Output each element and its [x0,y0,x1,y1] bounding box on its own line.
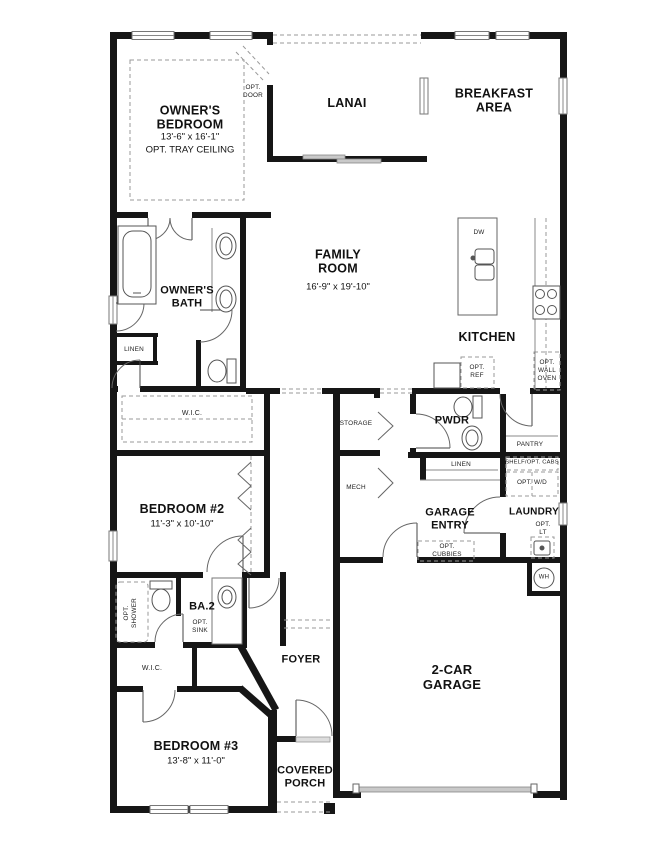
shower-icon [118,226,156,304]
opt-door-swing [243,46,269,74]
room-note-owners-bedroom: OPT. TRAY CEILING [120,146,260,157]
room-label-kitchen: KITCHEN [447,330,527,344]
callout-opt-shower: OPT. SHOWER [123,591,139,635]
room-label-lanai: LANAI [312,96,382,110]
counter-lines [212,218,558,480]
room-label-owners-bath: OWNER'S BATH [156,284,218,309]
room-dims-family-room: 16'-9" x 19'-10" [283,283,393,294]
callout-linen-hall: LINEN [441,461,481,469]
room-label-bedroom3: BEDROOM #3 [141,739,251,753]
room-dims-bedroom3: 13'-8" x 11'-0" [141,757,251,768]
callout-linen-bath: LINEN [114,346,154,354]
room-label-breakfast-area: BREAKFAST AREA [452,87,536,116]
storage-bifold [378,412,393,440]
room-label-wic1: W.I.C. [170,410,214,418]
bedroom2-closet-bifold [238,528,251,575]
sink-icon [216,233,236,312]
floor-plan-drawing [0,0,664,856]
room-label-garage: 2-CAR GARAGE [420,663,484,693]
room-label-mech: MECH [336,484,376,492]
mech-bifold [378,468,393,498]
callout-wh: WH [534,574,554,582]
floor-plan: OWNER'S BEDROOM 13'-6" x 16'-1" OPT. TRA… [0,0,664,856]
opt-door-swing [236,52,263,80]
room-label-owners-bedroom: OWNER'S BEDROOM [138,104,242,133]
room-dims-owners-bedroom: 13'-6" x 16'-1" [130,133,250,144]
kitchen-counter [434,363,460,388]
callout-opt-cubbies: OPT. CUBBIES [429,543,465,559]
room-label-bedroom2: BEDROOM #2 [127,502,237,516]
diagonal-walls [240,645,276,716]
callout-opt-ref: OPT. REF [465,364,490,380]
callout-opt-wall-oven: OPT. WALL OVEN [534,359,560,383]
toilet-icon [150,581,172,611]
room-label-laundry: LAUNDRY [505,506,563,518]
room-label-pwdr: PWDR [427,415,477,428]
toilet-icon [208,359,236,383]
callout-shelf-opt-cabs: SHELF/OPT. CABS [505,459,559,466]
room-label-foyer: FOYER [274,654,328,667]
sink-icon [462,426,482,450]
callout-opt-door: OPT. DOOR [239,84,267,100]
room-label-wic2: W.I.C. [130,665,174,673]
room-label-garage-entry: GARAGE ENTRY [422,506,478,531]
callout-opt-sink: OPT. SINK [187,619,213,635]
room-label-covered-porch: COVERED PORCH [273,764,337,789]
front-door-sill [296,737,330,742]
range-icon [533,286,560,319]
laundry-tub-icon [534,541,550,555]
callout-dw: DW [467,229,491,237]
room-label-family-room: FAMILY ROOM [308,248,368,277]
bedroom2-closet-bifold [238,462,251,510]
callout-opt-lt: OPT. LT [533,521,553,537]
room-dims-bedroom2: 11'-3" x 10'-10" [127,520,237,531]
room-label-pantry: PANTRY [508,441,552,449]
room-label-storage: STORAGE [333,420,379,428]
room-label-ba2: BA.2 [182,601,222,614]
callout-opt-wd: OPT. W/D [507,479,557,487]
